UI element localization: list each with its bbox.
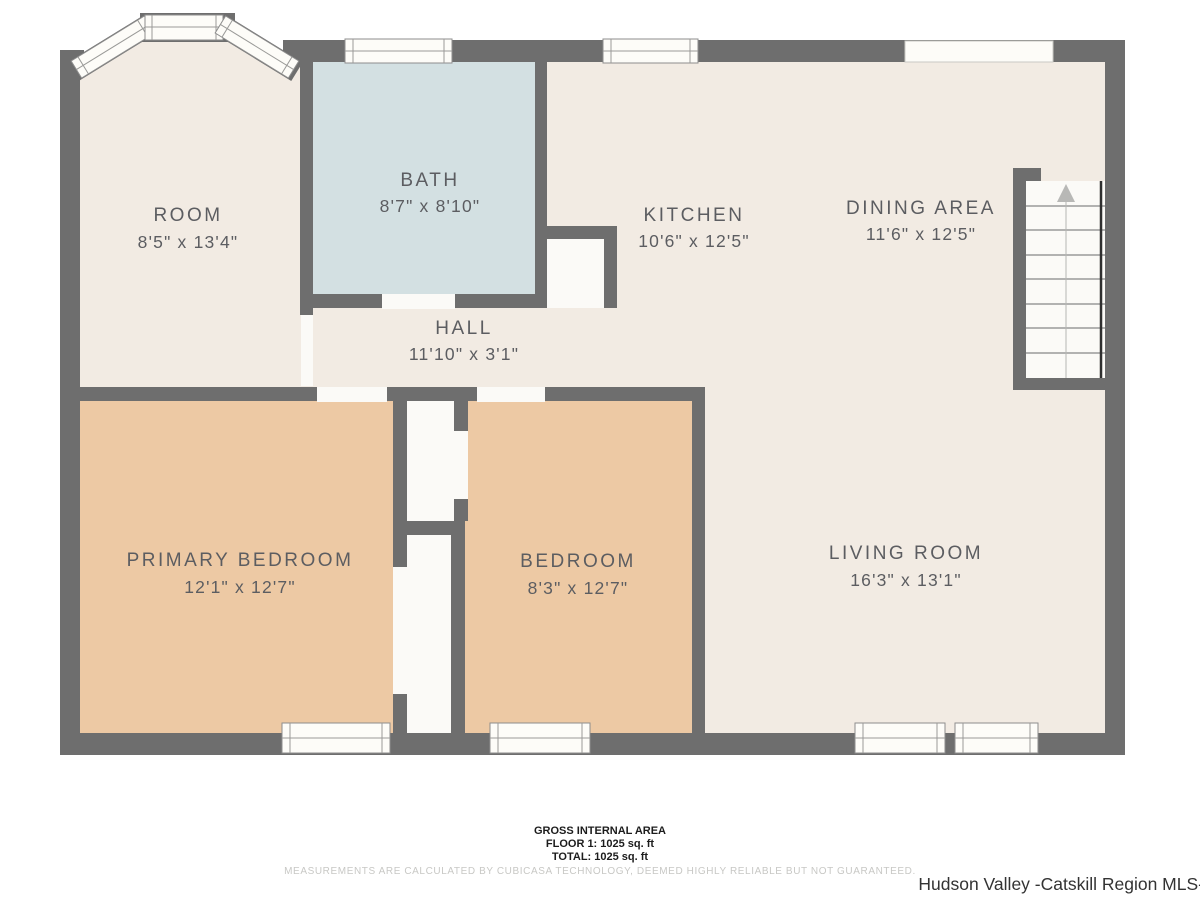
gross-internal-area-title: GROSS INTERNAL AREA xyxy=(0,825,1200,838)
kitchen-window xyxy=(603,39,698,63)
bedroom-door-opening xyxy=(477,387,545,402)
closet-kitchen xyxy=(547,239,604,308)
mls-watermark: Hudson Valley -Catskill Region MLS- xyxy=(918,874,1200,895)
bedroom-window xyxy=(490,723,590,753)
room-name: DINING AREA xyxy=(846,198,996,219)
room-name: PRIMARY BEDROOM xyxy=(127,550,354,571)
room-dims: 8'3" x 12'7" xyxy=(528,578,629,598)
floorplan-page: ROOM 8'5" x 13'4" BATH 8'7" x 8'10" KITC… xyxy=(0,0,1200,900)
bath-door-opening xyxy=(382,294,455,309)
dining-window xyxy=(905,41,1053,62)
room-name: BATH xyxy=(400,170,459,191)
room-dims: 8'5" x 13'4" xyxy=(138,232,239,252)
living-room-window-left xyxy=(855,723,945,753)
room-name: ROOM xyxy=(153,205,222,226)
closet-upper xyxy=(405,399,455,523)
room-dims: 8'7" x 8'10" xyxy=(380,196,481,216)
room-name: HALL xyxy=(435,318,493,339)
room-name: KITCHEN xyxy=(644,205,745,226)
living-room-window-right xyxy=(955,723,1038,753)
primary-bedroom-door-opening xyxy=(317,387,387,402)
total-area-line: TOTAL: 1025 sq. ft xyxy=(0,851,1200,864)
room-dims: 16'3" x 13'1" xyxy=(850,570,962,590)
floor-plan-svg: ROOM 8'5" x 13'4" BATH 8'7" x 8'10" KITC… xyxy=(0,0,1200,900)
room-dims: 11'6" x 12'5" xyxy=(866,224,976,244)
room-hall-opening xyxy=(301,315,313,386)
floor-area-line: FLOOR 1: 1025 sq. ft xyxy=(0,838,1200,851)
room-name: BEDROOM xyxy=(520,551,636,572)
room-dims: 10'6" x 12'5" xyxy=(638,231,750,251)
primary-bedroom-window xyxy=(282,723,390,753)
bay-window-center xyxy=(145,15,223,40)
bath-window xyxy=(345,39,452,63)
room-name: LIVING ROOM xyxy=(829,543,983,564)
floors xyxy=(80,34,1105,733)
room-dims: 12'1" x 12'7" xyxy=(184,577,296,597)
room-dims: 11'10" x 3'1" xyxy=(409,344,519,364)
